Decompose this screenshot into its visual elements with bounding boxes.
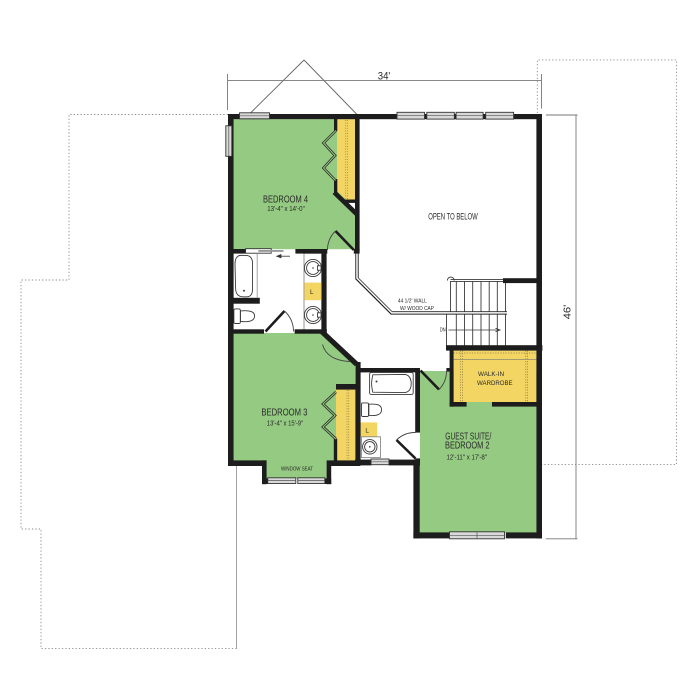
svg-text:46': 46' [562,305,574,320]
svg-text:34': 34' [378,70,391,82]
svg-text:WALK-IN: WALK-IN [478,371,504,378]
svg-text:13'-4" x 14'-0": 13'-4" x 14'-0" [267,204,305,213]
svg-text:WARDROBE: WARDROBE [477,380,513,387]
svg-text:12'-11" x 17'-8": 12'-11" x 17'-8" [447,453,488,462]
svg-text:L: L [365,428,369,435]
svg-text:L: L [310,289,314,296]
svg-text:DN: DN [440,328,446,334]
svg-text:13'-4" x 15'-9": 13'-4" x 15'-9" [267,418,304,427]
svg-text:BEDROOM 2: BEDROOM 2 [445,441,490,452]
svg-text:W/ WOOD CAP: W/ WOOD CAP [400,306,434,312]
svg-text:BEDROOM 3: BEDROOM 3 [261,408,307,419]
svg-text:WINDOW SEAT: WINDOW SEAT [281,467,313,473]
svg-text:OPEN TO BELOW: OPEN TO BELOW [428,212,478,223]
svg-text:44 1/2' WALL: 44 1/2' WALL [398,298,427,304]
